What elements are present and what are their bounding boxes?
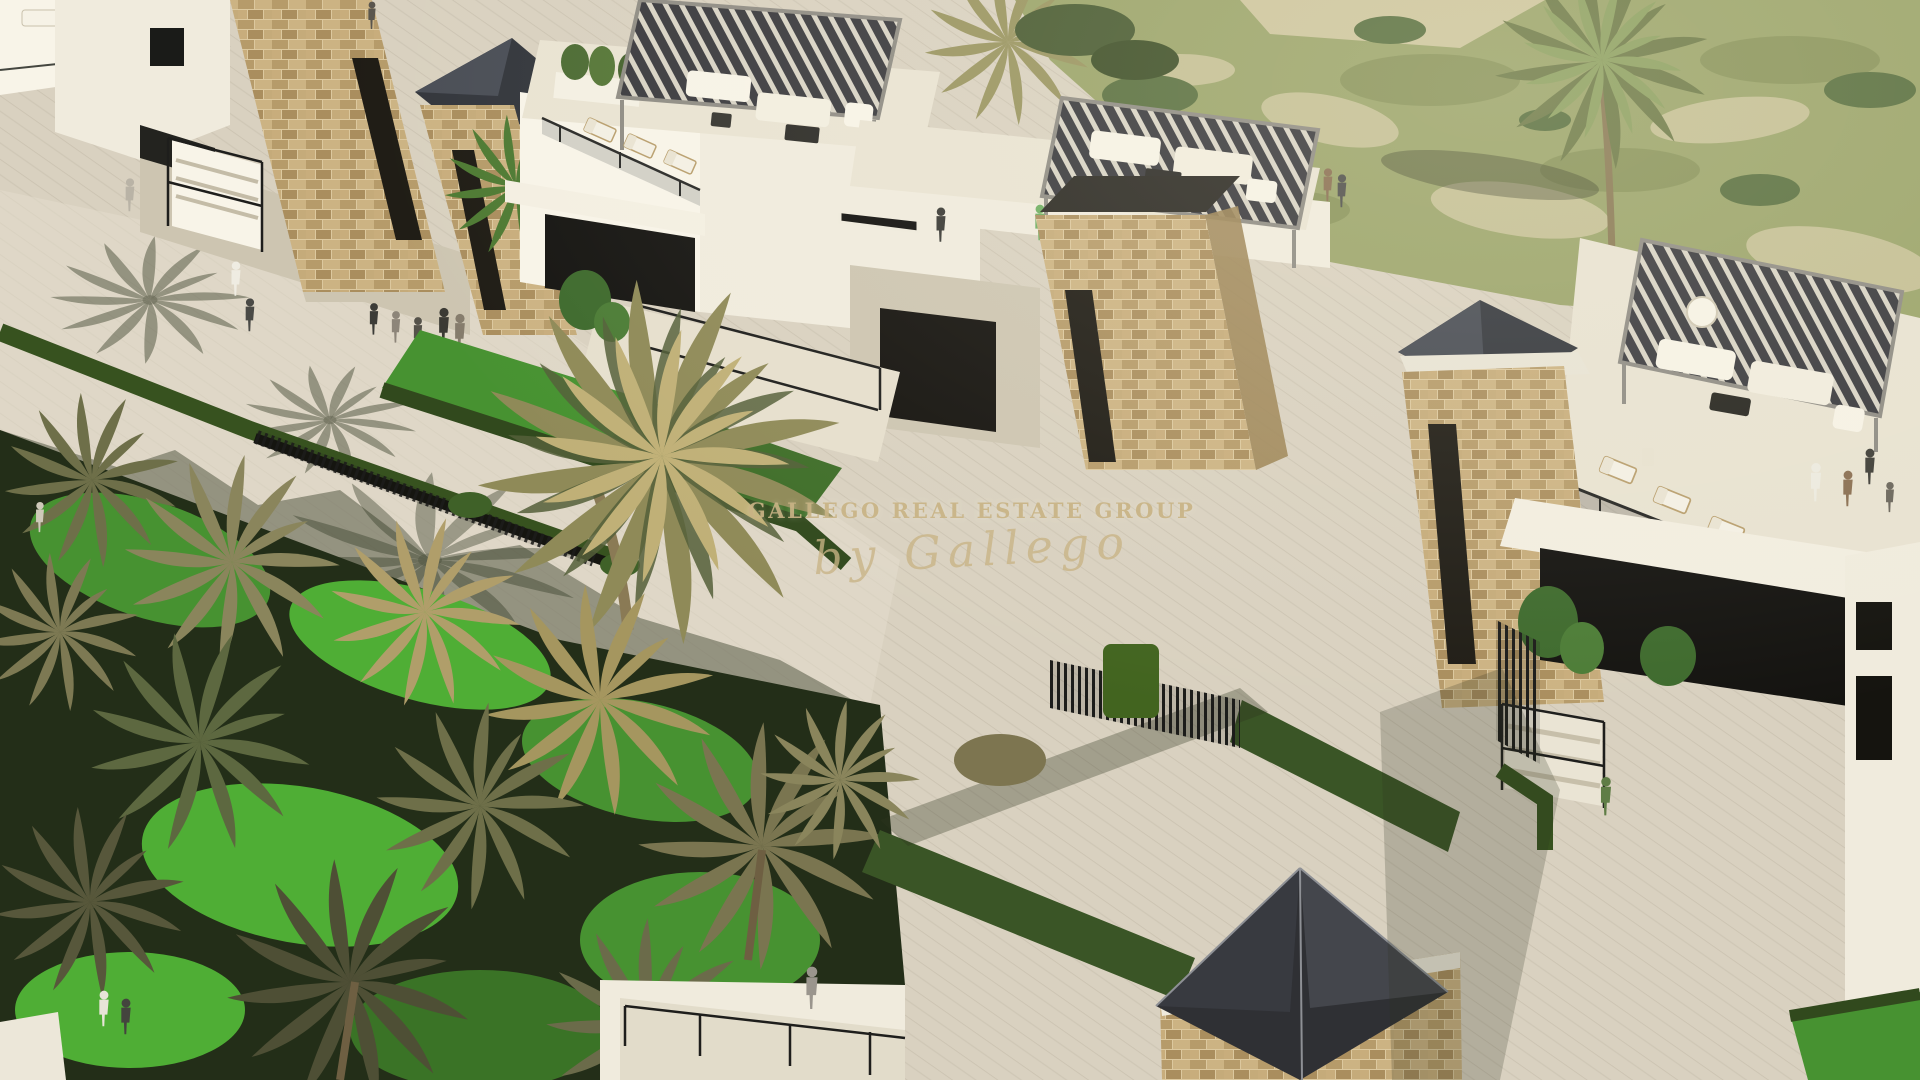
render-image: GALLEGO REAL ESTATE GROUP by Gallego [0,0,1920,1080]
scene-canvas [0,0,1920,1080]
sunlight-glow [0,0,1920,1080]
